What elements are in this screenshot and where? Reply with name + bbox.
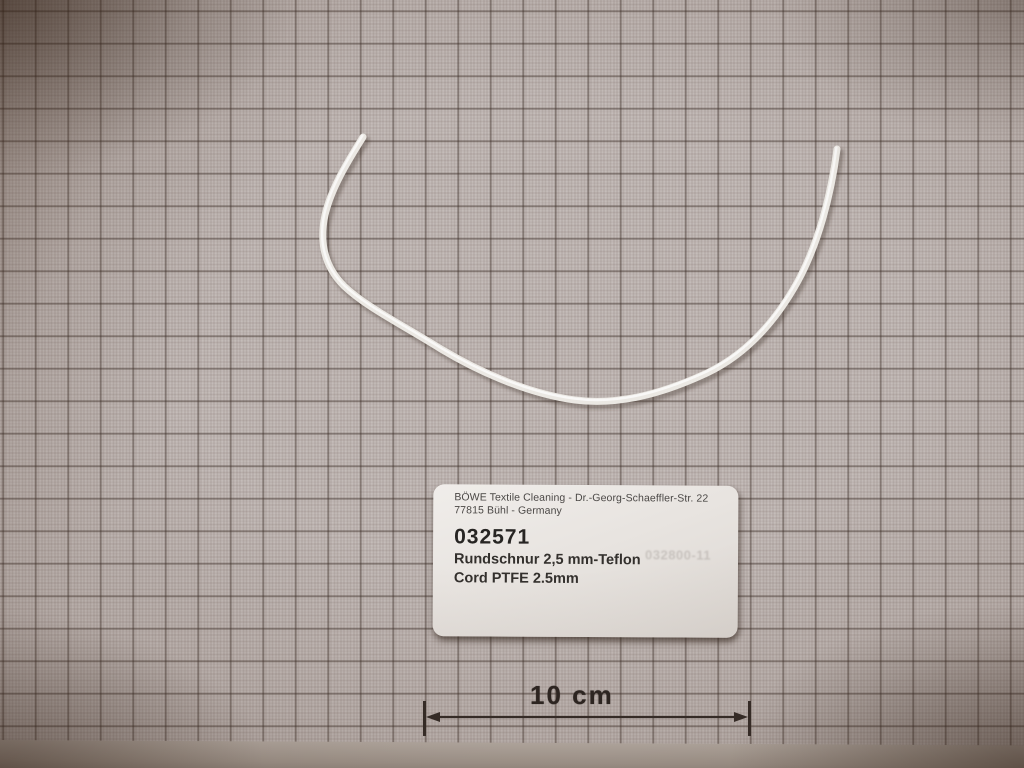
ptfe-cord bbox=[0, 0, 1024, 768]
label-faint-stamp: 032800-11 bbox=[645, 547, 711, 562]
label-description-en: Cord PTFE 2.5mm bbox=[454, 570, 726, 589]
cord-highlight bbox=[322, 136, 836, 400]
product-photo: 10 cm BÖWE Textile Cleaning - Dr.-Georg-… bbox=[0, 0, 1024, 768]
product-label: BÖWE Textile Cleaning - Dr.-Georg-Schaef… bbox=[433, 484, 739, 638]
cord-shadow bbox=[325, 141, 839, 405]
cord-body bbox=[323, 137, 837, 401]
label-manufacturer-line2: 77815 Bühl - Germany bbox=[454, 504, 726, 518]
